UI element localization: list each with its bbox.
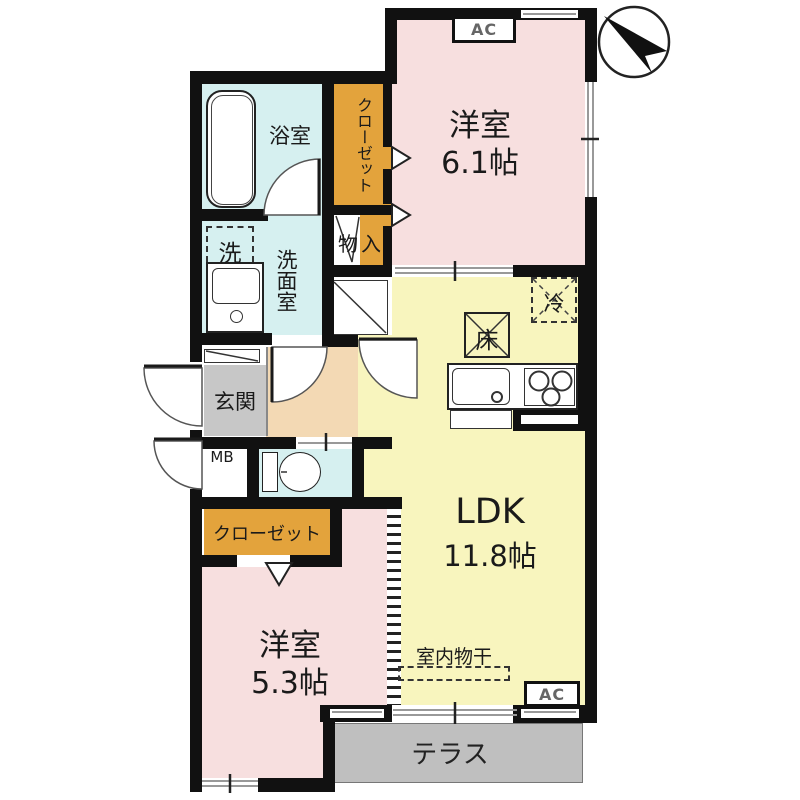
wall xyxy=(202,209,268,221)
wall xyxy=(190,333,272,345)
shoe-cabinet xyxy=(204,349,260,363)
north-arrow-icon xyxy=(599,7,669,77)
window-slot xyxy=(521,10,578,18)
mb-label: MB xyxy=(198,448,246,466)
wall xyxy=(334,205,392,215)
ac-unit-bottom: AC xyxy=(524,681,580,707)
window-slot xyxy=(202,779,258,791)
floor-plan: 洋室 6.1帖 浴室 クローゼット 洗 洗面室 物入 冷 床 玄関 MB クロー… xyxy=(0,0,800,800)
closet-top-label: クローゼット xyxy=(336,88,390,202)
bedroom2-size: 5.3帖 xyxy=(220,658,360,702)
bath-label: 浴室 xyxy=(250,120,330,150)
window-slot xyxy=(521,709,579,718)
wall xyxy=(190,555,237,567)
bedroom2-floor-upper-right xyxy=(342,509,387,567)
hall-floor xyxy=(266,347,358,437)
sliding-opening xyxy=(393,706,513,722)
fridge-label: 冷 xyxy=(531,288,577,318)
ac-top-label: AC xyxy=(471,20,497,39)
wall xyxy=(190,71,202,362)
ldk-size: 11.8帖 xyxy=(420,533,560,575)
washer-label: 洗 xyxy=(206,234,254,268)
bedroom1-size: 6.1帖 xyxy=(410,138,550,182)
window-slot xyxy=(586,82,596,197)
entrance-step-line xyxy=(266,347,268,436)
closet-bottom-label: クローゼット xyxy=(204,520,330,546)
wall xyxy=(327,335,358,347)
ldk-label: LDK xyxy=(420,492,560,532)
kitchen-sink xyxy=(452,368,510,405)
toilet-bowl xyxy=(279,452,321,492)
kitchen-stove xyxy=(524,368,575,406)
entrance-label: 玄関 xyxy=(204,386,266,416)
sliding-opening xyxy=(392,266,513,276)
terrace-label: テラス xyxy=(380,734,520,771)
wall xyxy=(352,437,392,449)
toilet-tank xyxy=(262,452,278,492)
wall xyxy=(247,449,259,497)
vanity xyxy=(206,262,264,333)
wall xyxy=(190,497,402,509)
wall xyxy=(258,778,335,792)
wall xyxy=(578,277,585,430)
window-slot xyxy=(330,709,384,718)
indoor-drying-label: 室内物干 xyxy=(398,642,510,669)
wall xyxy=(290,555,342,567)
wall xyxy=(585,8,597,82)
ac-unit-top: AC xyxy=(452,16,516,43)
kitchen-cabinet xyxy=(450,410,512,429)
wall xyxy=(190,71,397,84)
wall xyxy=(385,8,397,84)
entrance-door-arc xyxy=(144,368,202,426)
bath-door-gap xyxy=(268,209,322,221)
storage-label: 物入 xyxy=(330,228,392,257)
bathtub xyxy=(206,90,256,208)
washroom-label: 洗面室 xyxy=(262,226,310,334)
wall xyxy=(513,265,597,277)
floor-hatch-label: 床 xyxy=(464,321,510,355)
wall xyxy=(330,509,342,555)
shelf-diagonal-box xyxy=(332,280,388,335)
kitchen-half-wall-slot xyxy=(521,415,580,424)
ac-bottom-label: AC xyxy=(539,685,565,704)
bedroom2-floor-lower xyxy=(202,705,323,778)
wall xyxy=(190,489,202,792)
